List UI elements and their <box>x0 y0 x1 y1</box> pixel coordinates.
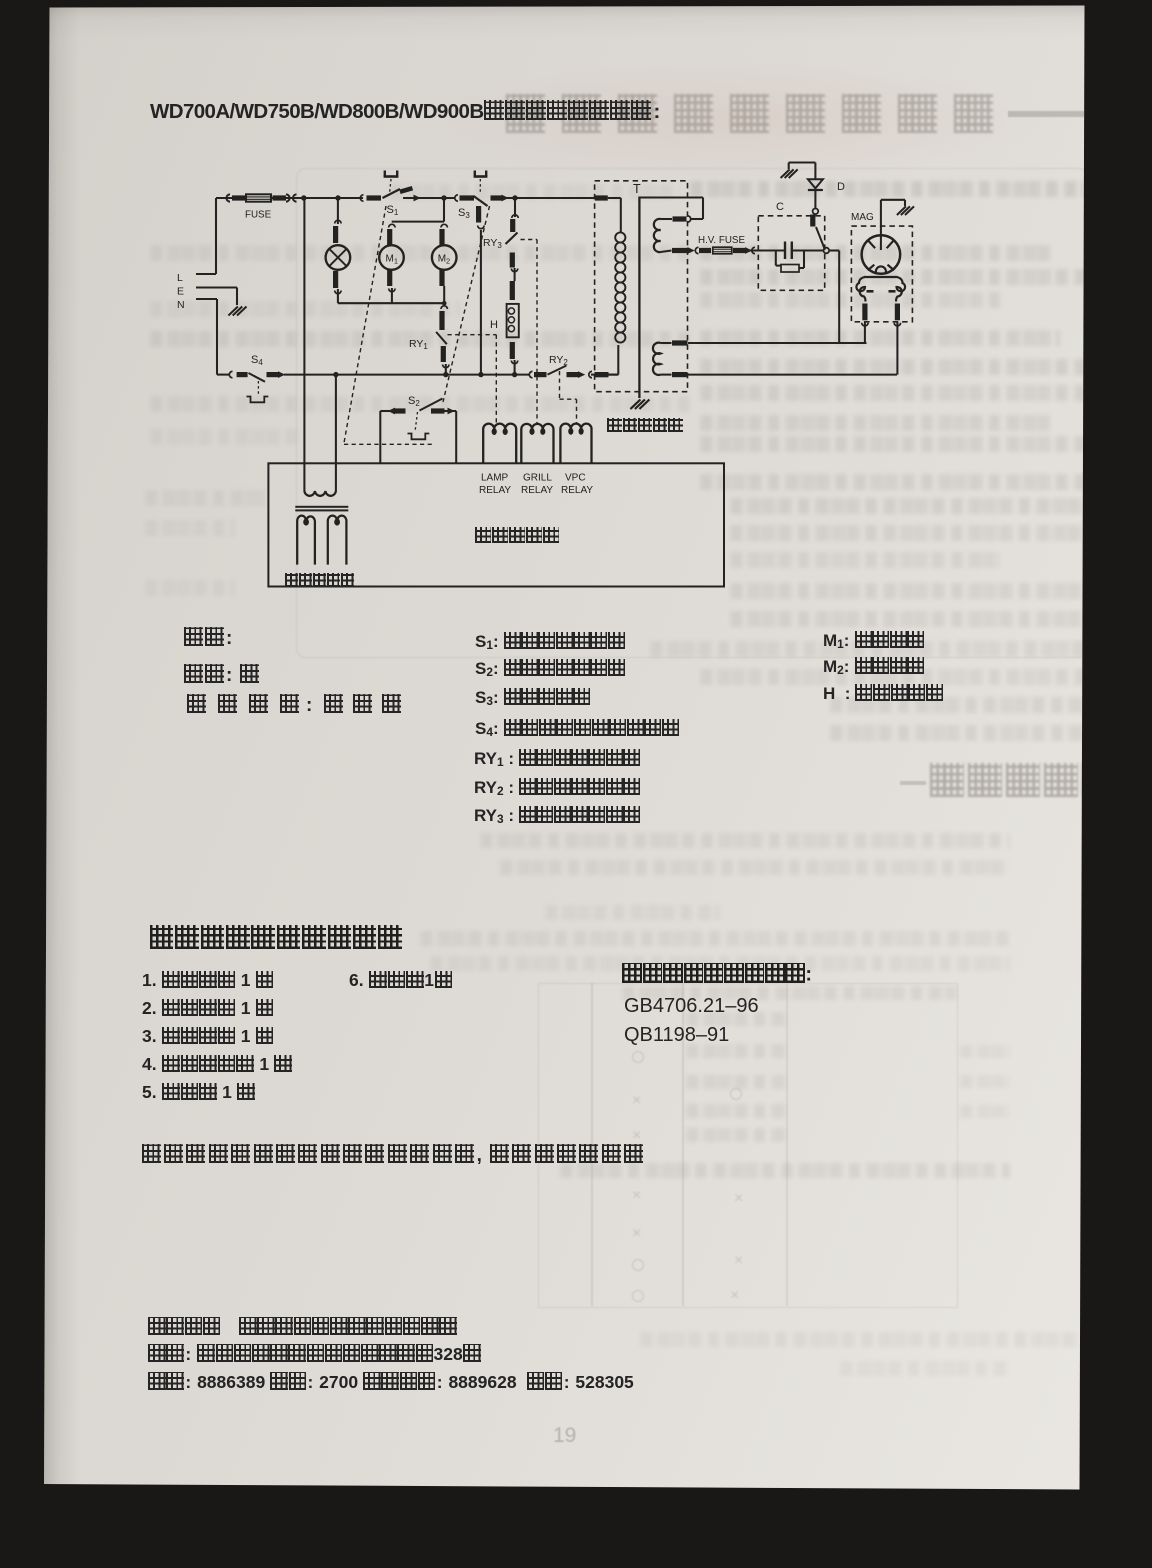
svg-text:S3: S3 <box>458 207 470 220</box>
svg-text:S4: S4 <box>251 354 263 367</box>
svg-text:GRILL: GRILL <box>523 473 552 484</box>
svg-text:RY2: RY2 <box>549 354 568 367</box>
svg-text:E: E <box>177 286 184 298</box>
svg-text:H.V. FUSE: H.V. FUSE <box>698 235 745 246</box>
svg-text:C: C <box>776 201 784 213</box>
svg-text:T: T <box>633 182 641 196</box>
svg-text:VPC: VPC <box>565 473 586 484</box>
svg-text:MAG: MAG <box>851 212 874 223</box>
svg-text:RELAY: RELAY <box>521 485 553 496</box>
svg-text:H: H <box>490 319 498 331</box>
svg-text:FUSE: FUSE <box>245 210 272 221</box>
svg-text:RELAY: RELAY <box>561 485 593 496</box>
svg-text:M1: M1 <box>386 254 399 266</box>
svg-text:RELAY: RELAY <box>479 485 511 496</box>
svg-text:M2: M2 <box>438 254 451 266</box>
svg-text:RY3: RY3 <box>483 237 502 250</box>
svg-text:S2: S2 <box>408 395 420 408</box>
svg-text:LAMP: LAMP <box>481 473 509 484</box>
svg-text:RY1: RY1 <box>409 338 428 351</box>
svg-text:N: N <box>177 299 185 311</box>
svg-text:S1: S1 <box>387 204 399 217</box>
svg-text:D: D <box>837 181 845 193</box>
svg-text:L: L <box>177 272 183 284</box>
